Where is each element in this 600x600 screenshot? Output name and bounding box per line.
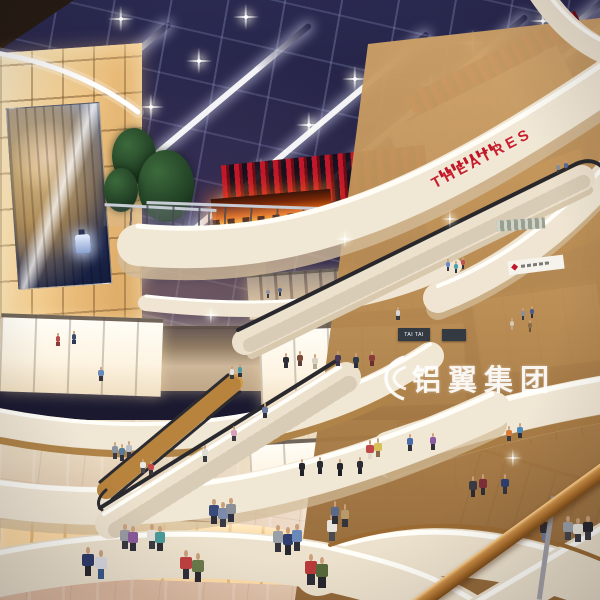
watermark: 铝翼集团 xyxy=(370,350,560,406)
lens-sparkles xyxy=(0,0,600,600)
sparkle xyxy=(448,217,452,221)
watermark-swirl-logo xyxy=(370,351,410,405)
sparkle xyxy=(209,313,213,317)
mall-atrium-rendering: THEATRES TAI TAI 铝翼集团 xyxy=(0,0,600,600)
sparkle xyxy=(511,456,515,460)
watermark-text: 铝翼集团 xyxy=(412,357,556,399)
sparkle xyxy=(343,237,347,241)
